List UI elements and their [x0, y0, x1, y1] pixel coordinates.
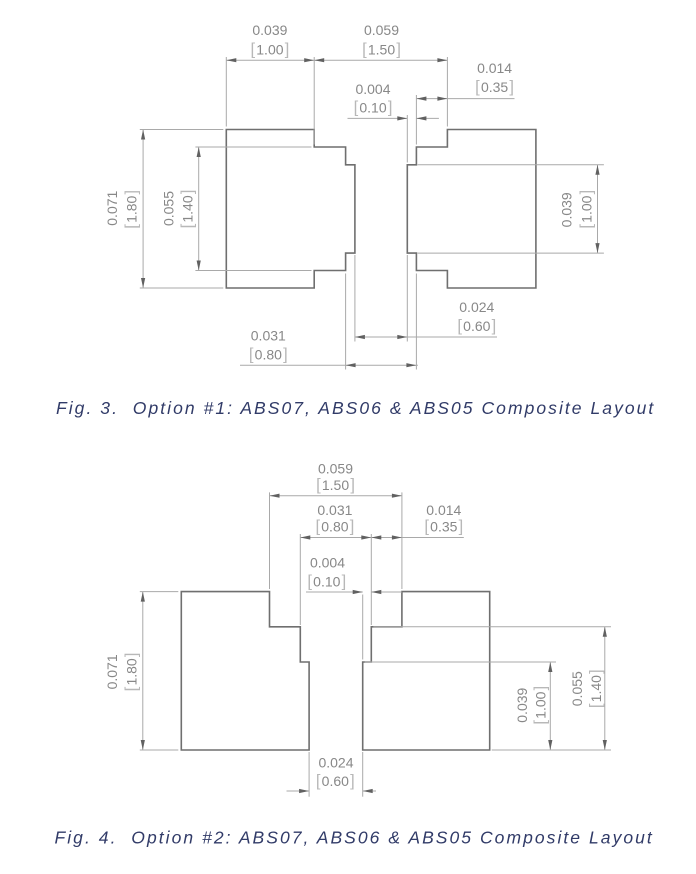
svg-text:[1.40]: [1.40] — [179, 190, 197, 229]
svg-text:0.059: 0.059 — [364, 22, 399, 38]
svg-text:0.059: 0.059 — [318, 461, 353, 477]
svg-text:[0.80]: [0.80] — [315, 518, 354, 536]
svg-text:0.055: 0.055 — [569, 671, 585, 706]
svg-text:0.039: 0.039 — [252, 22, 287, 38]
svg-text:[1.80]: [1.80] — [122, 190, 140, 229]
svg-text:[1.80]: [1.80] — [123, 652, 141, 691]
svg-text:[0.60]: [0.60] — [457, 317, 496, 335]
svg-text:[0.35]: [0.35] — [424, 518, 463, 536]
svg-text:[0.60]: [0.60] — [316, 772, 355, 790]
svg-text:Fig. 3. Option #1: ABS07, ABS: Fig. 3. Option #1: ABS07, ABS06 & ABS05 … — [56, 398, 655, 418]
svg-text:[1.00]: [1.00] — [532, 686, 550, 725]
svg-text:0.024: 0.024 — [318, 755, 353, 771]
svg-text:[1.50]: [1.50] — [316, 476, 355, 494]
svg-text:0.004: 0.004 — [310, 555, 345, 571]
svg-text:0.031: 0.031 — [317, 502, 352, 518]
svg-text:[1.40]: [1.40] — [587, 669, 605, 708]
svg-text:0.014: 0.014 — [426, 502, 461, 518]
svg-text:0.039: 0.039 — [558, 192, 574, 227]
svg-text:[0.80]: [0.80] — [249, 346, 288, 364]
svg-text:0.024: 0.024 — [459, 299, 494, 315]
svg-text:0.014: 0.014 — [477, 60, 512, 76]
svg-text:[1.50]: [1.50] — [362, 41, 401, 59]
svg-text:0.071: 0.071 — [104, 654, 120, 689]
svg-text:0.004: 0.004 — [355, 81, 390, 97]
svg-text:0.055: 0.055 — [161, 191, 177, 226]
svg-text:[1.00]: [1.00] — [250, 41, 289, 59]
svg-text:[1.00]: [1.00] — [578, 190, 596, 229]
svg-text:0.039: 0.039 — [514, 687, 530, 722]
svg-text:[0.10]: [0.10] — [354, 99, 393, 117]
svg-text:[0.35]: [0.35] — [475, 78, 514, 96]
svg-text:0.071: 0.071 — [104, 190, 120, 225]
svg-text:0.031: 0.031 — [251, 328, 286, 344]
svg-text:[0.10]: [0.10] — [307, 572, 346, 590]
svg-text:Fig. 4. Option #2: ABS07, ABS: Fig. 4. Option #2: ABS07, ABS06 & ABS05 … — [55, 828, 654, 848]
